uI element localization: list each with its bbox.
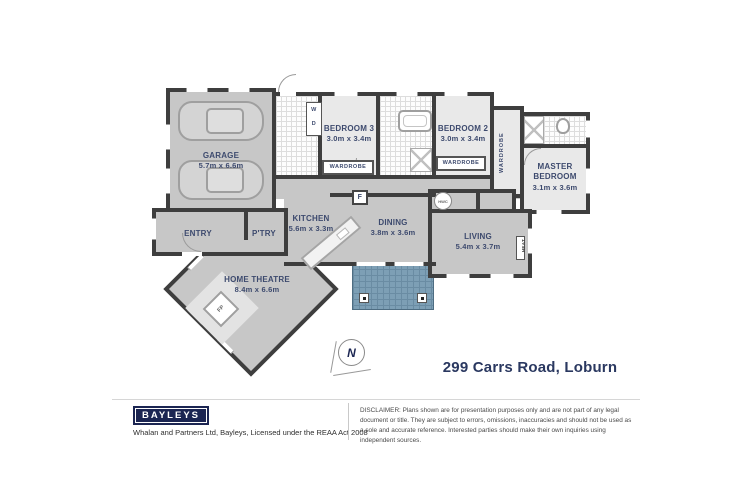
window bbox=[187, 254, 204, 271]
label-entry: ENTRY bbox=[166, 229, 230, 239]
footer-divider-horizontal bbox=[112, 399, 640, 400]
label-garage: GARAGE5.7m x 6.6m bbox=[176, 151, 266, 171]
footer-divider-vertical bbox=[348, 403, 349, 440]
window bbox=[444, 92, 468, 96]
label-living: LIVING5.4m x 3.7m bbox=[446, 232, 510, 252]
heat-pump: HEAT bbox=[516, 236, 525, 260]
deck-door bbox=[356, 262, 386, 266]
window bbox=[446, 274, 470, 278]
label-bedroom3: BEDROOM 33.0m x 3.4m bbox=[318, 124, 380, 144]
door-arc bbox=[278, 74, 296, 92]
floor-plan-page: FP W D bbox=[0, 0, 750, 500]
window bbox=[586, 120, 590, 138]
deck bbox=[352, 262, 434, 310]
bayleys-logo-text: BAYLEYS bbox=[135, 408, 207, 423]
window bbox=[152, 218, 156, 240]
deck-post bbox=[417, 293, 427, 303]
label-home-theatre: HOME THEATRE8.4m x 6.6m bbox=[221, 275, 293, 295]
label-dining: DINING3.8m x 3.6m bbox=[362, 218, 424, 238]
heat-label: HEAT bbox=[518, 239, 529, 252]
toilet-icon bbox=[556, 118, 570, 134]
window bbox=[166, 168, 170, 194]
label-pantry: P'TRY bbox=[240, 229, 288, 239]
window bbox=[396, 92, 418, 96]
compass-line bbox=[333, 369, 371, 376]
car-icon bbox=[178, 101, 264, 141]
window bbox=[186, 88, 208, 92]
deck-post bbox=[359, 293, 369, 303]
washer-label: W bbox=[307, 108, 321, 114]
window bbox=[166, 124, 170, 150]
window bbox=[228, 88, 250, 92]
shower-icon bbox=[410, 148, 432, 172]
label-master-bedroom: MASTER BEDROOM3.1m x 3.6m bbox=[523, 162, 587, 193]
label-bedroom2: BEDROOM 23.0m x 3.4m bbox=[432, 124, 494, 144]
north-label: N bbox=[347, 346, 356, 360]
hot-water-cylinder-icon: HWC bbox=[434, 192, 452, 210]
wardrobe-label-bedroom2: WARDROBE bbox=[436, 156, 486, 171]
shower-icon bbox=[524, 116, 544, 144]
license-text: Whalan and Partners Ltd, Bayleys, Licens… bbox=[133, 428, 368, 437]
window bbox=[490, 274, 514, 278]
door-gap bbox=[182, 252, 202, 256]
disclaimer-text: DISCLAIMER: Plans shown are for presenta… bbox=[360, 406, 636, 446]
wardrobe-label-corridor: WARDROBE bbox=[499, 118, 515, 188]
deck-door bbox=[394, 262, 424, 266]
wardrobe-label-bedroom3: WARDROBE bbox=[322, 160, 374, 175]
window bbox=[334, 92, 358, 96]
property-address: 299 Carrs Road, Loburn bbox=[420, 359, 640, 376]
bathtub-icon bbox=[398, 110, 432, 132]
fridge-label: F bbox=[352, 190, 368, 205]
bayleys-logo: BAYLEYS bbox=[133, 406, 209, 425]
compass-line bbox=[330, 341, 337, 373]
compass-north-icon: N bbox=[338, 339, 365, 366]
window bbox=[536, 210, 562, 214]
wall-segment bbox=[330, 193, 436, 197]
door-gap bbox=[280, 92, 296, 96]
